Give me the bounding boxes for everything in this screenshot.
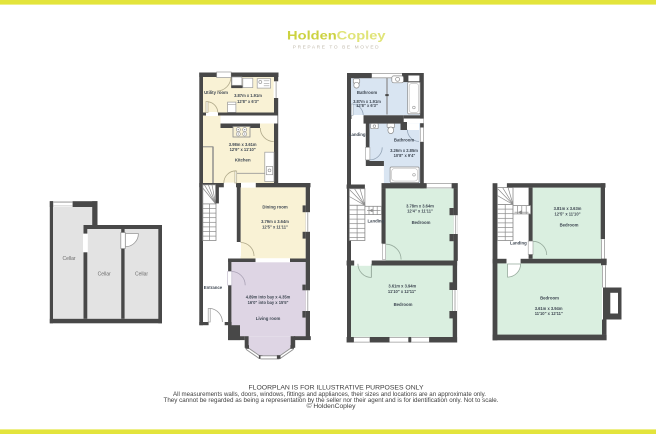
svg-text:11'10" x 12'11": 11'10" x 12'11" bbox=[388, 289, 416, 294]
svg-text:Cellar: Cellar bbox=[135, 272, 148, 278]
svg-text:11'10" x 12'11": 11'10" x 12'11" bbox=[535, 311, 563, 316]
svg-text:12'9" x 11'10": 12'9" x 11'10" bbox=[230, 147, 256, 152]
svg-text:10'8" x 9'4": 10'8" x 9'4" bbox=[394, 153, 416, 158]
svg-text:Bathroom: Bathroom bbox=[394, 138, 414, 143]
svg-text:HoldenCopley: HoldenCopley bbox=[287, 29, 386, 43]
svg-text:FLOORPLAN IS FOR ILLUSTRATIVE: FLOORPLAN IS FOR ILLUSTRATIVE PURPOSES O… bbox=[249, 385, 425, 392]
svg-text:3.79m x 3.64m: 3.79m x 3.64m bbox=[261, 219, 289, 224]
svg-text:Kitchen: Kitchen bbox=[235, 157, 251, 162]
svg-text:3.87m x 1.91m: 3.87m x 1.91m bbox=[234, 93, 262, 98]
svg-text:3.81m x 3.63m: 3.81m x 3.63m bbox=[554, 206, 582, 211]
svg-text:© HoldenCopley: © HoldenCopley bbox=[307, 403, 357, 410]
svg-text:Landing: Landing bbox=[349, 132, 366, 137]
svg-text:4.89m into bay x 4.35m: 4.89m into bay x 4.35m bbox=[246, 295, 291, 300]
svg-text:16'0" into bay x 15'5": 16'0" into bay x 15'5" bbox=[248, 300, 289, 305]
svg-text:3.61m x 3.94m: 3.61m x 3.94m bbox=[388, 284, 416, 289]
svg-text:Cellar: Cellar bbox=[98, 272, 111, 278]
svg-text:Bedroom: Bedroom bbox=[540, 296, 559, 301]
svg-text:12'5" x 11'10": 12'5" x 11'10" bbox=[554, 212, 580, 217]
svg-text:12'4" x 11'11": 12'4" x 11'11" bbox=[407, 209, 433, 214]
svg-text:12'8" x 6'3": 12'8" x 6'3" bbox=[237, 99, 259, 104]
svg-text:Utility room: Utility room bbox=[204, 90, 228, 95]
svg-text:Cellar: Cellar bbox=[62, 256, 75, 262]
svg-text:12'8" x 6'3": 12'8" x 6'3" bbox=[356, 103, 378, 108]
svg-text:Bedroom: Bedroom bbox=[412, 220, 431, 225]
svg-text:12'5" x 11'11": 12'5" x 11'11" bbox=[262, 225, 288, 230]
svg-text:Bedroom: Bedroom bbox=[394, 302, 413, 307]
svg-text:PREPARE TO BE MOVED: PREPARE TO BE MOVED bbox=[293, 44, 380, 50]
svg-text:Bedroom: Bedroom bbox=[560, 223, 579, 228]
svg-text:Landing: Landing bbox=[510, 241, 527, 246]
svg-text:Dining room: Dining room bbox=[262, 204, 287, 209]
svg-text:Living room: Living room bbox=[256, 316, 281, 321]
svg-text:Entrance: Entrance bbox=[204, 285, 223, 290]
svg-text:Landing: Landing bbox=[367, 219, 384, 224]
svg-text:Bathroom: Bathroom bbox=[357, 90, 377, 95]
